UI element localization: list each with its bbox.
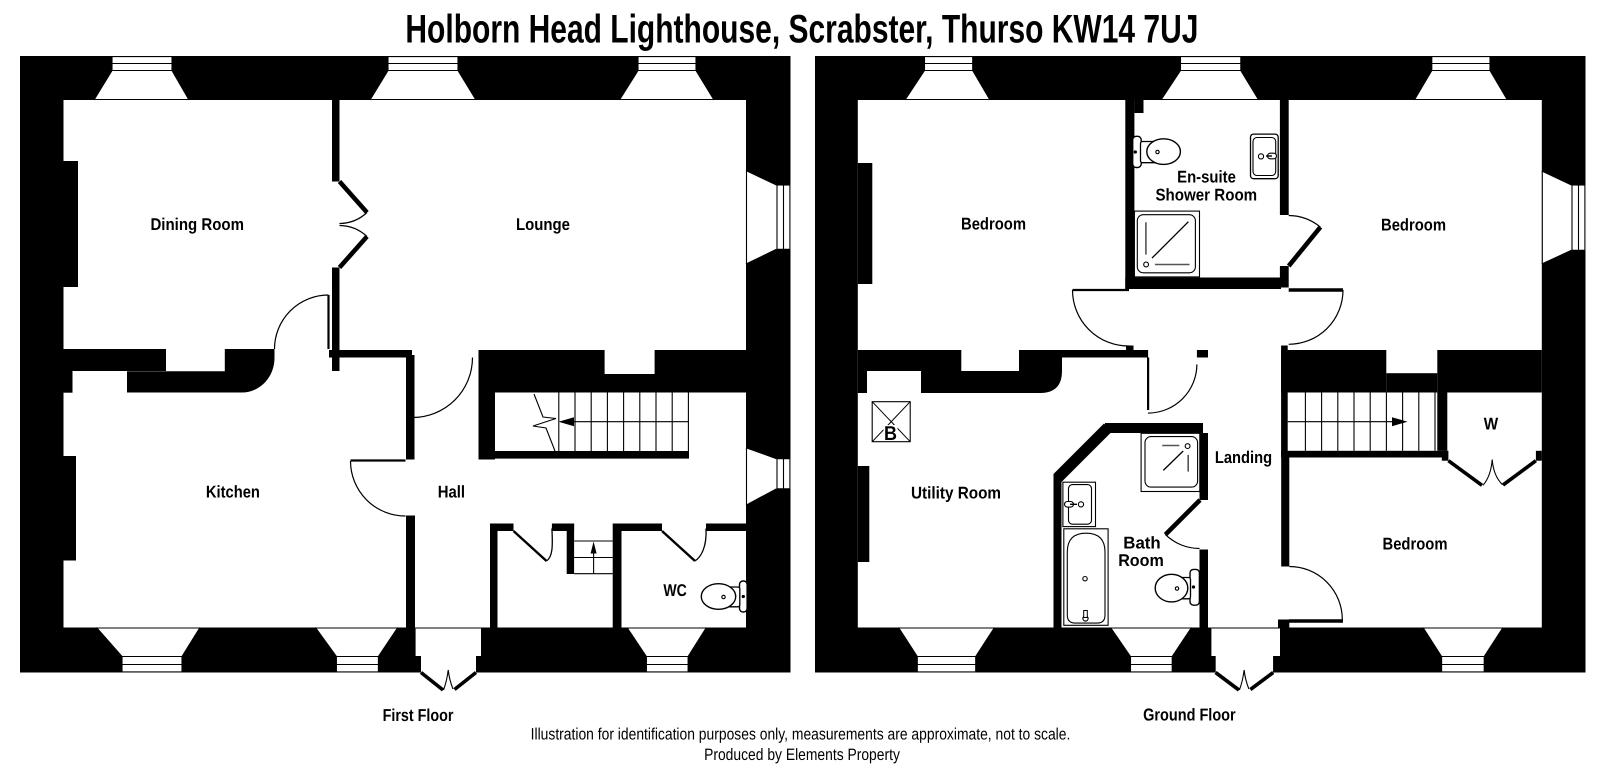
- svg-text:Bath: Bath: [1123, 533, 1160, 552]
- svg-text:Dining Room: Dining Room: [150, 215, 244, 234]
- svg-text:Ground Floor: Ground Floor: [1143, 705, 1236, 725]
- svg-text:Shower Room: Shower Room: [1155, 186, 1257, 205]
- svg-text:Room: Room: [1118, 551, 1164, 570]
- svg-text:Utility Room: Utility Room: [911, 483, 1001, 502]
- svg-text:Produced by Elements Property: Produced by Elements Property: [704, 746, 900, 764]
- svg-text:WC: WC: [663, 581, 686, 600]
- svg-text:B: B: [884, 423, 897, 445]
- svg-text:Bedroom: Bedroom: [1381, 216, 1446, 235]
- svg-text:W: W: [1484, 415, 1499, 434]
- svg-text:Kitchen: Kitchen: [206, 483, 260, 502]
- svg-text:Holborn Head Lighthouse, Scrab: Holborn Head Lighthouse, Scrabster, Thur…: [405, 7, 1198, 51]
- svg-text:Landing: Landing: [1215, 448, 1272, 467]
- svg-text:First Floor: First Floor: [383, 705, 454, 725]
- svg-text:Bedroom: Bedroom: [961, 215, 1026, 234]
- svg-text:Illustration for identificatio: Illustration for identification purposes…: [531, 726, 1071, 744]
- svg-text:En-suite: En-suite: [1177, 168, 1236, 187]
- svg-text:Bedroom: Bedroom: [1383, 535, 1448, 554]
- svg-text:Hall: Hall: [438, 483, 465, 502]
- svg-text:Lounge: Lounge: [516, 215, 570, 234]
